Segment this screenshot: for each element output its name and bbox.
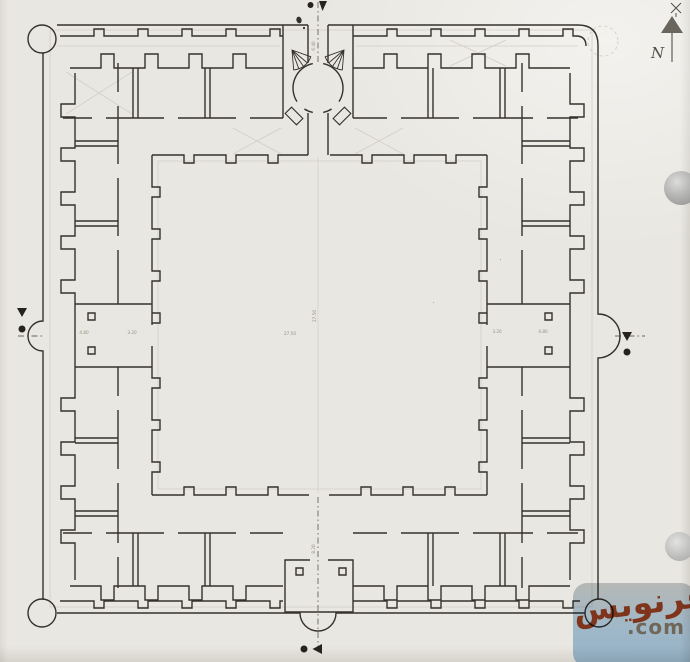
punch-hole-top: [664, 171, 690, 205]
caravanserai-floor-plan: N 27.50 27.50 4.80 3.20 3.20 4.80 8.20 6…: [0, 0, 690, 662]
watermark-badge: سفرنویس .com: [573, 583, 690, 662]
plan-walls: [28, 25, 620, 631]
axis-centerlines: [18, 2, 645, 651]
survey-markers: [17, 1, 632, 654]
north-label: N: [650, 44, 665, 62]
registration-mark: [671, 3, 681, 17]
dim-hall-left-b: 3.20: [127, 330, 137, 335]
dim-hall-right-b: 4.80: [538, 329, 548, 334]
dim-courtyard-width: 27.50: [284, 331, 296, 336]
north-arrow: N: [650, 16, 683, 62]
dim-hall-right-a: 3.20: [492, 329, 502, 334]
scanned-plan-page: N 27.50 27.50 4.80 3.20 3.20 4.80 8.20 6…: [0, 0, 690, 662]
dim-axis-north: 6.40: [311, 41, 316, 51]
entrance-portal: [283, 16, 353, 155]
dim-axis-south: 8.20: [311, 544, 316, 554]
punch-hole-bottom: [665, 532, 690, 561]
construction-guides: [50, 26, 618, 607]
north-arrow-head: [661, 16, 683, 33]
dim-courtyard-height: 27.50: [312, 310, 317, 322]
dim-hall-left-a: 4.80: [79, 330, 89, 335]
